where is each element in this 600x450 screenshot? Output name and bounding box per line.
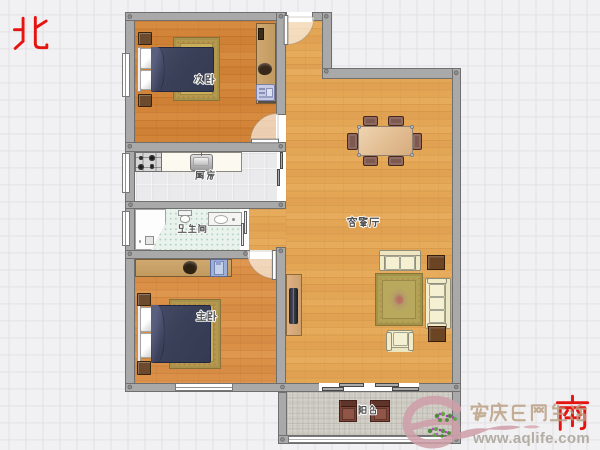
svg-text:www.aqlife.com: www.aqlife.com (472, 430, 590, 447)
